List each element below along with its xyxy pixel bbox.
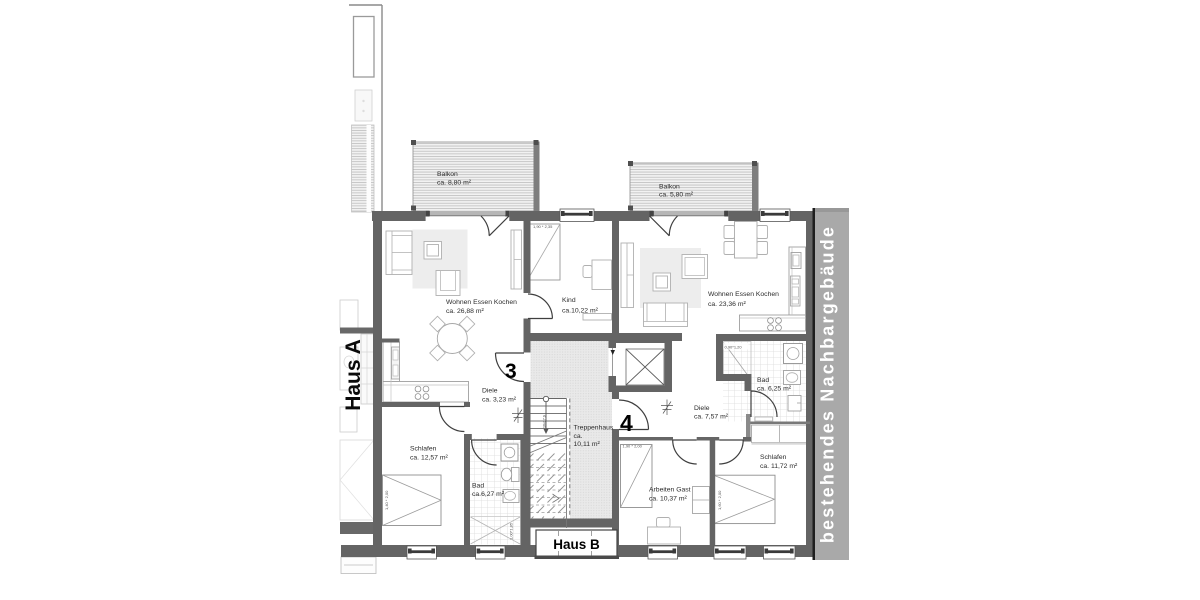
svg-text:Treppenhaus: Treppenhaus (574, 425, 614, 432)
svg-text:ca. 7,57 m²: ca. 7,57 m² (694, 414, 729, 421)
svg-text:1,60 * 2,00: 1,60 * 2,00 (717, 490, 722, 510)
svg-text:ca. 5,80 m²: ca. 5,80 m² (659, 192, 694, 199)
svg-text:Arbeiten Gast: Arbeiten Gast (649, 487, 691, 494)
svg-text:ca. 3,23 m²: ca. 3,23 m² (482, 397, 517, 404)
svg-text:Haus A: Haus A (342, 339, 365, 411)
svg-text:10,11 m²: 10,11 m² (574, 441, 601, 448)
svg-text:Kind: Kind (562, 297, 576, 304)
svg-text:ca. 8,80 m²: ca. 8,80 m² (437, 180, 472, 187)
svg-text:4: 4 (620, 410, 633, 436)
svg-text:1,40 * 2,00: 1,40 * 2,00 (384, 490, 389, 510)
svg-text:Bad: Bad (472, 483, 484, 490)
svg-text:ca. 26,88 m²: ca. 26,88 m² (446, 308, 485, 315)
svg-text:ca. 12,57 m²: ca. 12,57 m² (410, 455, 449, 462)
svg-text:Diele: Diele (694, 405, 710, 412)
svg-text:bestehendes Nachbargebäude: bestehendes Nachbargebäude (818, 225, 838, 543)
svg-text:3: 3 (505, 360, 517, 383)
svg-text:ca.10,22 m²: ca.10,22 m² (562, 308, 599, 315)
svg-text:1,00*1,85: 1,00*1,85 (509, 522, 514, 540)
svg-text:ca.6,27 m²: ca.6,27 m² (472, 491, 505, 498)
svg-text:Haus B: Haus B (553, 537, 600, 552)
svg-text:1,90 * 2,35: 1,90 * 2,35 (533, 224, 553, 229)
svg-text:0,90*1,20: 0,90*1,20 (725, 345, 743, 350)
svg-text:Diele: Diele (482, 388, 498, 395)
svg-text:Bad: Bad (757, 377, 769, 384)
svg-text:ca. 11,72 m²: ca. 11,72 m² (760, 463, 798, 470)
svg-text:ca. 6,25 m²: ca. 6,25 m² (757, 386, 792, 393)
svg-text:Wohnen Essen Kochen: Wohnen Essen Kochen (446, 299, 517, 306)
svg-text:ca. 10,37 m²: ca. 10,37 m² (649, 496, 688, 503)
svg-text:Balkon: Balkon (437, 171, 458, 178)
svg-text:Schlafen: Schlafen (760, 454, 787, 461)
svg-text:Wohnen Essen Kochen: Wohnen Essen Kochen (708, 291, 779, 298)
svg-text:16x17,9: 16x17,9 (543, 415, 547, 428)
svg-text:ca.: ca. (574, 433, 583, 440)
svg-text:Schlafen: Schlafen (410, 446, 437, 453)
svg-text:Balkon: Balkon (659, 184, 680, 191)
svg-text:1,90 * 2,00: 1,90 * 2,00 (623, 444, 643, 449)
svg-text:ca. 23,36 m²: ca. 23,36 m² (708, 301, 747, 308)
